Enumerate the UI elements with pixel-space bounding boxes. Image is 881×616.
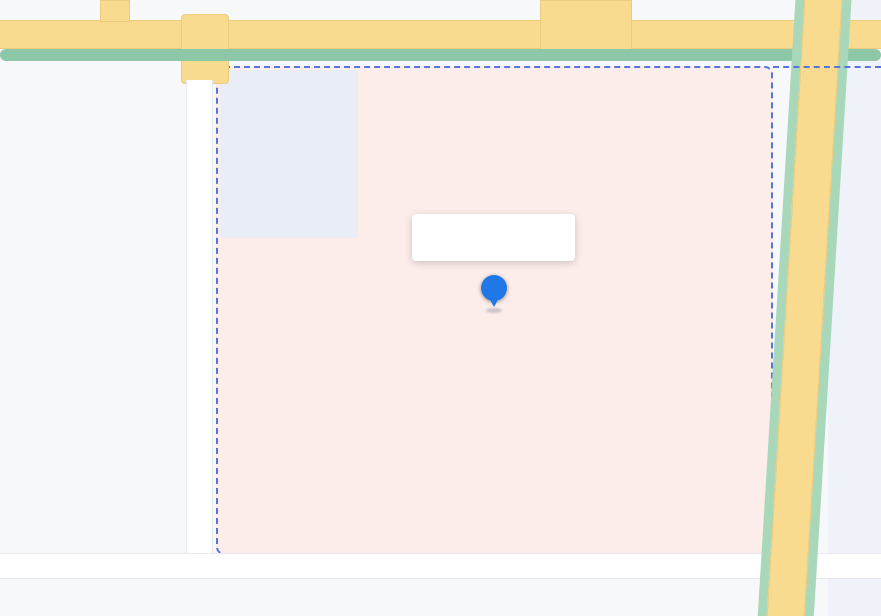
map-canvas[interactable] (0, 0, 881, 616)
road-stub-top-a (100, 0, 130, 22)
campus-residence-zone (220, 70, 358, 238)
selected-pin[interactable] (481, 275, 507, 301)
campus-border-extension (773, 66, 881, 68)
metro-line5-strip (0, 49, 881, 61)
street-shuiwen-east-lane (0, 553, 881, 579)
poi-info-card[interactable] (412, 214, 575, 261)
street-shuiwen-lane (186, 80, 213, 555)
road-youyi-west-surface (0, 20, 881, 49)
road-stub-top-b (540, 0, 632, 52)
